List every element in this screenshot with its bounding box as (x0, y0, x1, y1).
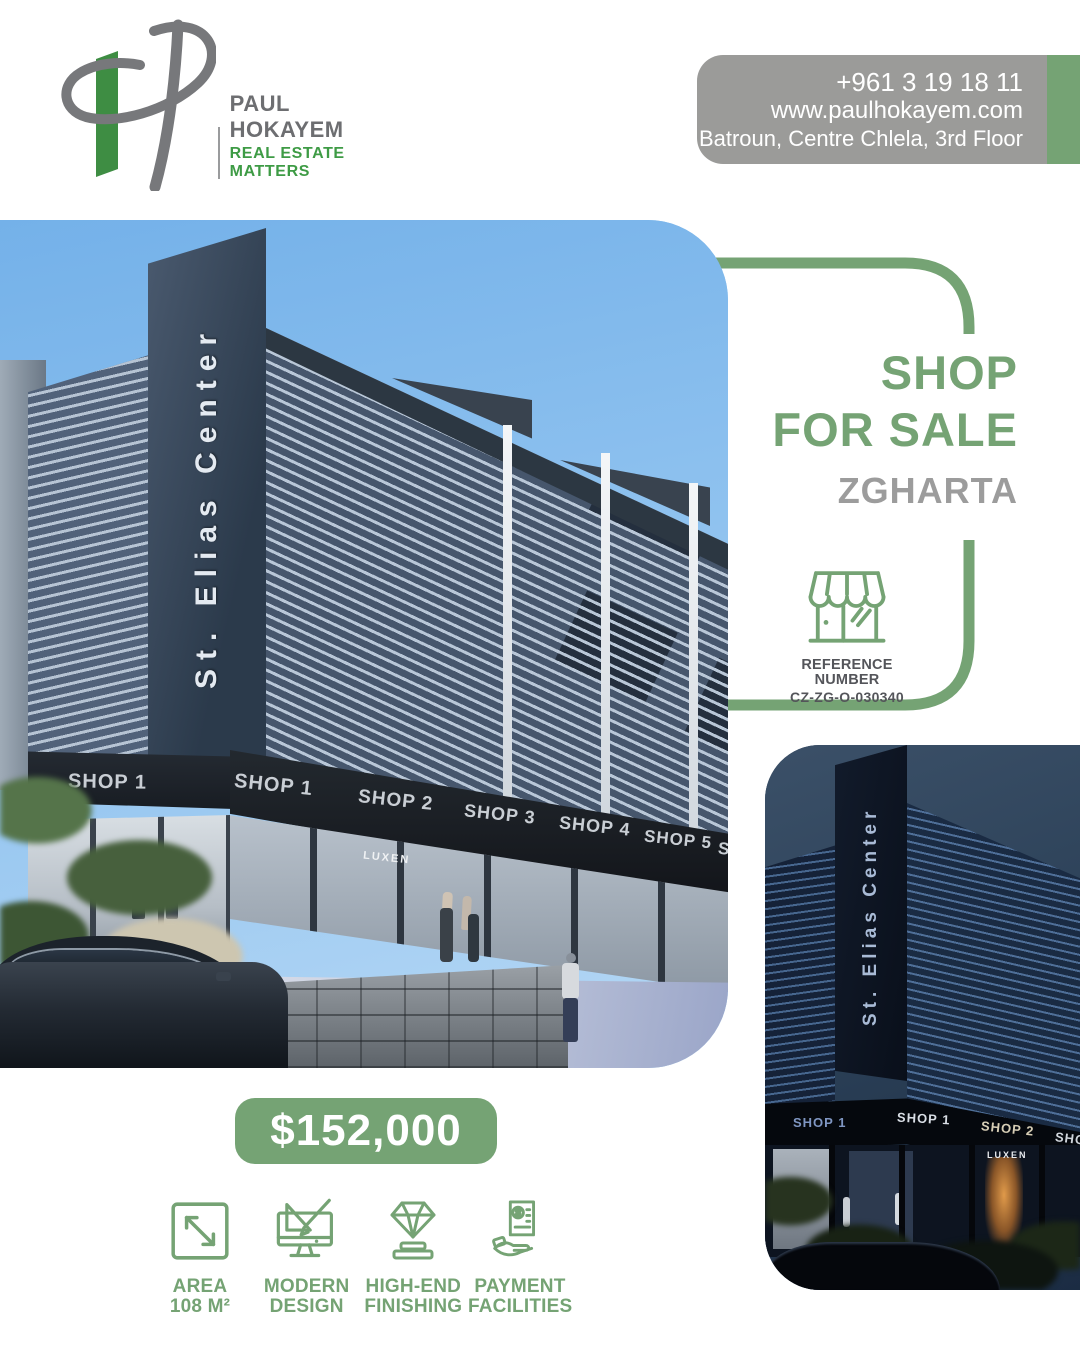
reference-block: REFERENCE NUMBER CZ-ZG-O-030340 (781, 564, 913, 705)
person-legs (563, 998, 578, 1042)
logo-text-block: PAUL HOKAYEM REAL ESTATE MATTERS (230, 91, 396, 191)
brand-tagline: REAL ESTATE MATTERS (230, 145, 396, 181)
brand-logo: PAUL HOKAYEM REAL ESTATE MATTERS (56, 16, 396, 191)
louver-stripes (765, 840, 835, 1112)
paul-hokayem-monogram-icon (56, 19, 216, 191)
feature-label-line1: PAYMENT (468, 1277, 572, 1297)
person-torso (562, 963, 579, 999)
shop-sign: SHOP 1 (897, 1110, 951, 1128)
diamond-icon (381, 1196, 445, 1264)
tower-sign-panel: St. Elias Center (148, 228, 266, 776)
logo-loop (66, 27, 212, 120)
main-building-photo: St. Elias Center SHOP 1 SHOP 1 SHOP 2 SH… (0, 220, 728, 1068)
contact-lines: +961 3 19 18 11 www.paulhokayem.com Batr… (699, 68, 1023, 152)
sale-title-line1: SHOP (772, 344, 1018, 401)
price-pill: $152,000 (235, 1098, 497, 1164)
shop-sign: SHOP 2 (357, 786, 434, 816)
feature-icon-box (148, 1188, 252, 1264)
feature-icon-box (468, 1188, 572, 1264)
shop-sign: SHOP 1 (793, 1115, 846, 1130)
banner-green-strip (1047, 55, 1080, 164)
tower-sign-text: St. Elias Center (148, 268, 266, 746)
feature-icon-box (255, 1188, 359, 1264)
payment-hand-icon (489, 1196, 551, 1264)
shop-sign: SHOP 4 (558, 812, 632, 840)
louver-stripes (28, 355, 149, 767)
feature-label-line2: DESIGN (255, 1297, 359, 1317)
features-row: AREA 108 M² MODERN DESIGN (148, 1188, 572, 1317)
feature-label-line1: AREA (148, 1277, 252, 1297)
facade-fin (689, 483, 698, 875)
night-west-face (765, 840, 835, 1112)
car-body (0, 962, 288, 1068)
feature-label-line2: FACILITIES (468, 1297, 572, 1317)
reference-number: CZ-ZG-O-030340 (781, 690, 913, 705)
price-text: $152,000 (270, 1106, 462, 1156)
window-sign: LUXEN (987, 1150, 1028, 1160)
facade-fin (503, 425, 512, 837)
person-silhouette (468, 914, 479, 962)
building-west-face (28, 355, 149, 767)
car-mirror (216, 972, 231, 981)
storefront-icon (799, 564, 895, 648)
night-tower-sign-panel: St. Elias Center (835, 745, 907, 1081)
facade-fin (601, 453, 610, 857)
feature-label-line1: MODERN (255, 1277, 359, 1297)
feature-payment-facilities: PAYMENT FACILITIES (468, 1188, 572, 1317)
contact-banner: +961 3 19 18 11 www.paulhokayem.com Batr… (697, 55, 1080, 164)
sale-title-block: SHOP FOR SALE ZGHARTA (772, 344, 1018, 512)
brand-name: PAUL HOKAYEM (230, 91, 396, 143)
shop-sign: SHOP 3 (463, 800, 537, 828)
feature-modern-design: MODERN DESIGN (255, 1188, 359, 1317)
contact-phone: +961 3 19 18 11 (699, 68, 1023, 97)
design-monitor-icon (273, 1194, 341, 1264)
logo-divider (218, 127, 220, 179)
contact-address: Batroun, Centre Chlela, 3rd Floor (699, 125, 1023, 152)
contact-website: www.paulhokayem.com (699, 97, 1023, 125)
shop-sign: SHOP 5 (643, 826, 713, 853)
night-building-photo: St. Elias Center SHOP 1 SHOP 1 SHOP 2 SH… (765, 745, 1080, 1290)
feature-label-line1: HIGH-END (361, 1277, 465, 1297)
feature-icon-box (361, 1188, 465, 1264)
feature-highend-finishing: HIGH-END FINISHING (361, 1188, 465, 1317)
sale-location: ZGHARTA (772, 470, 1018, 512)
sale-title-line2: FOR SALE (772, 401, 1018, 458)
tower-sign-text: St. Elias Center (835, 771, 907, 1061)
feature-area: AREA 108 M² (148, 1188, 252, 1317)
flyer-canvas: PAUL HOKAYEM REAL ESTATE MATTERS +961 3 … (0, 0, 1080, 1350)
reference-label: REFERENCE NUMBER (781, 658, 913, 688)
shop-sign-partial: SH (717, 839, 728, 862)
area-expand-icon (167, 1198, 233, 1264)
feature-label-line2: FINISHING (361, 1297, 465, 1317)
feature-label-line2: 108 M² (148, 1297, 252, 1317)
person-head (566, 953, 576, 963)
person-silhouette (440, 908, 453, 962)
